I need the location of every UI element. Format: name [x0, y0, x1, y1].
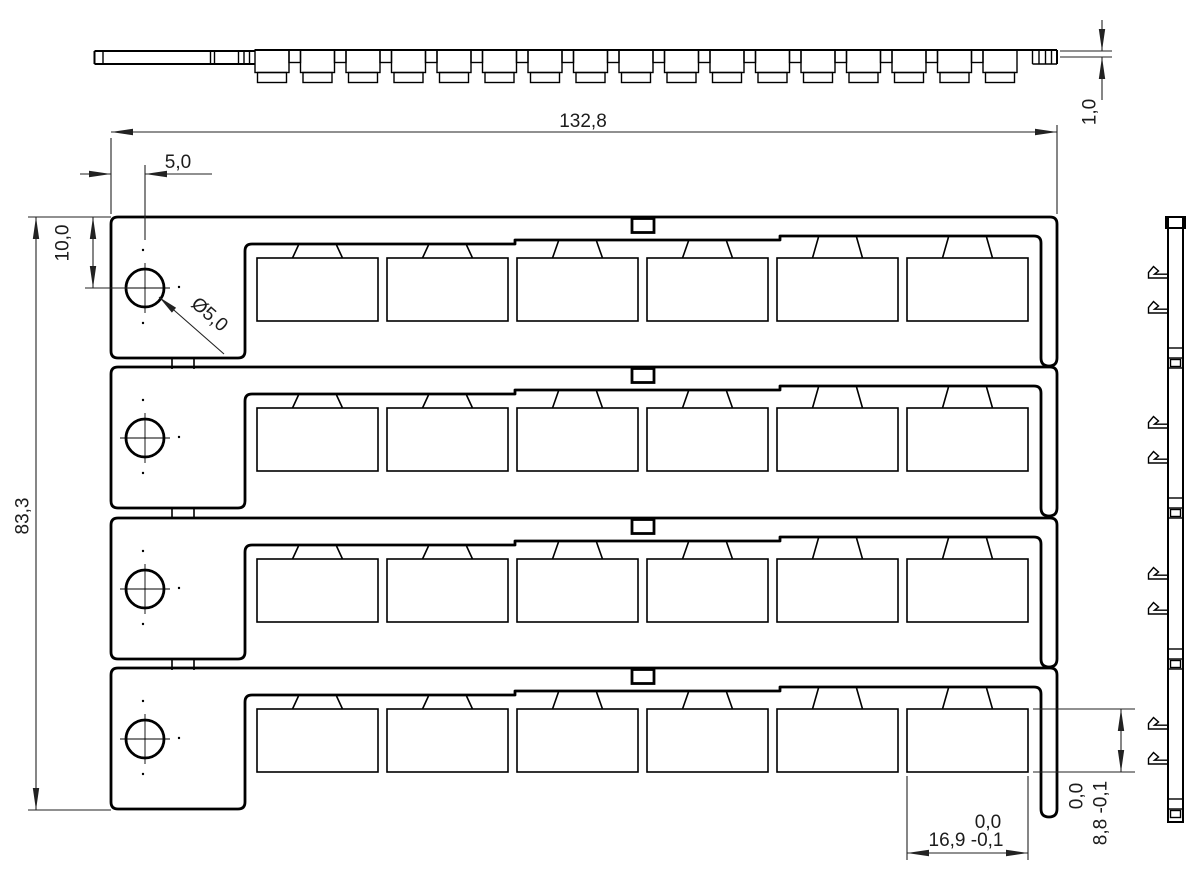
- profile-tooth: [346, 50, 380, 73]
- profile-link: [335, 50, 347, 63]
- profile-link: [699, 50, 711, 63]
- profile-link: [562, 50, 574, 63]
- dim-total-height-label: 83,3: [13, 498, 34, 535]
- dim-thickness: 1,0: [1060, 20, 1112, 125]
- dim-marker-width-label: 16,9 -0,1: [929, 830, 1004, 851]
- profile-tooth-lip: [895, 73, 924, 83]
- dim-total-height: 83,3: [13, 217, 112, 810]
- profile-tooth: [437, 50, 471, 73]
- dim-marker-height-label: 8,8 -0,1: [1091, 781, 1112, 845]
- technical-drawing: 132,8 1,0 5,0 10,0: [0, 0, 1200, 876]
- profile-tooth: [801, 50, 835, 73]
- dim-marker-height-tol-label: 0,0: [1067, 783, 1088, 809]
- profile-tooth-lip: [349, 73, 378, 83]
- profile-tooth-lip: [986, 73, 1015, 83]
- profile-tooth-lip: [394, 73, 423, 83]
- profile-link: [426, 50, 438, 63]
- profile-link: [881, 50, 893, 63]
- profile-link: [289, 50, 301, 63]
- profile-tooth-lip: [940, 73, 969, 83]
- profile-tooth: [892, 50, 926, 73]
- side-connectors: [1168, 348, 1183, 818]
- profile-tooth: [301, 50, 335, 73]
- dim-marker-width: 0,0 16,9 -0,1: [907, 776, 1028, 860]
- profile-link: [835, 50, 847, 63]
- profile-tooth: [710, 50, 744, 73]
- profile-link: [972, 50, 984, 63]
- profile-tooth: [938, 50, 972, 73]
- profile-tooth: [983, 50, 1017, 73]
- profile-link: [790, 50, 802, 63]
- profile-link: [926, 50, 938, 63]
- profile-tooth: [665, 50, 699, 73]
- profile-tooth: [574, 50, 608, 73]
- profile-tooth: [483, 50, 517, 73]
- profile-tooth: [528, 50, 562, 73]
- profile-tooth-lip: [758, 73, 787, 83]
- side-body: [1168, 217, 1183, 822]
- profile-tooth-lip: [440, 73, 469, 83]
- profile-tooth: [392, 50, 426, 73]
- profile-tooth-lip: [849, 73, 878, 83]
- profile-tooth-lip: [713, 73, 742, 83]
- dim-total-width: 132,8: [111, 111, 1057, 214]
- profile-tooth-lip: [258, 73, 287, 83]
- profile-tooth-lip: [303, 73, 332, 83]
- profile-link: [517, 50, 529, 63]
- profile-tooth: [756, 50, 790, 73]
- profile-link: [653, 50, 665, 63]
- dim-hole-offset-x-label: 5,0: [165, 152, 191, 173]
- profile-tooth-lip: [804, 73, 833, 83]
- profile-tooth: [847, 50, 881, 73]
- profile-link: [608, 50, 620, 63]
- top-profile-view: [95, 50, 1058, 83]
- profile-link: [471, 50, 483, 63]
- profile-tooth: [255, 50, 289, 73]
- profile-tooth-lip: [485, 73, 514, 83]
- technical-drawing-page: 132,8 1,0 5,0 10,0: [0, 0, 1200, 876]
- profile-link: [380, 50, 392, 63]
- dim-total-width-label: 132,8: [559, 111, 607, 132]
- profile-tooth-lip: [667, 73, 696, 83]
- front-view: [111, 217, 1057, 817]
- dim-hole-offset-y-label: 10,0: [53, 225, 74, 262]
- profile-tooth-lip: [622, 73, 651, 83]
- side-view: [1149, 217, 1186, 822]
- profile-tooth-lip: [531, 73, 560, 83]
- profile-link: [744, 50, 756, 63]
- profile-comb: [255, 50, 1017, 83]
- dim-thickness-label: 1,0: [1080, 99, 1101, 125]
- profile-tooth-lip: [576, 73, 605, 83]
- profile-tooth: [619, 50, 653, 73]
